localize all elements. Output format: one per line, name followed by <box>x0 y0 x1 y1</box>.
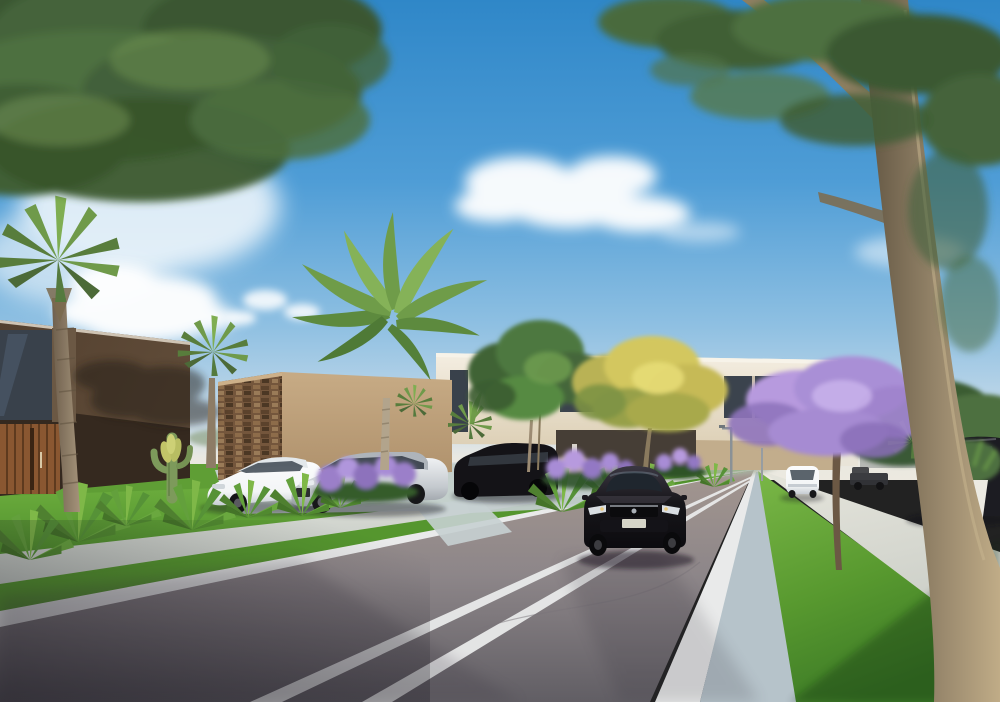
corner-vignette <box>0 520 430 702</box>
distant-car-rear-window <box>790 470 815 480</box>
door-handle <box>40 452 42 468</box>
street-render-image <box>0 0 1000 702</box>
sedan-hood-sheen <box>596 496 672 503</box>
sedan-emblem <box>632 509 637 514</box>
scene-svg <box>0 0 1000 702</box>
sedan-plate <box>622 519 646 528</box>
cloud-wisp <box>660 222 740 242</box>
house-left <box>0 320 220 496</box>
house-left-door-gap <box>30 428 34 490</box>
coupe-headlight <box>212 484 225 489</box>
car-white-distant <box>780 466 824 502</box>
window-tall <box>450 370 468 432</box>
